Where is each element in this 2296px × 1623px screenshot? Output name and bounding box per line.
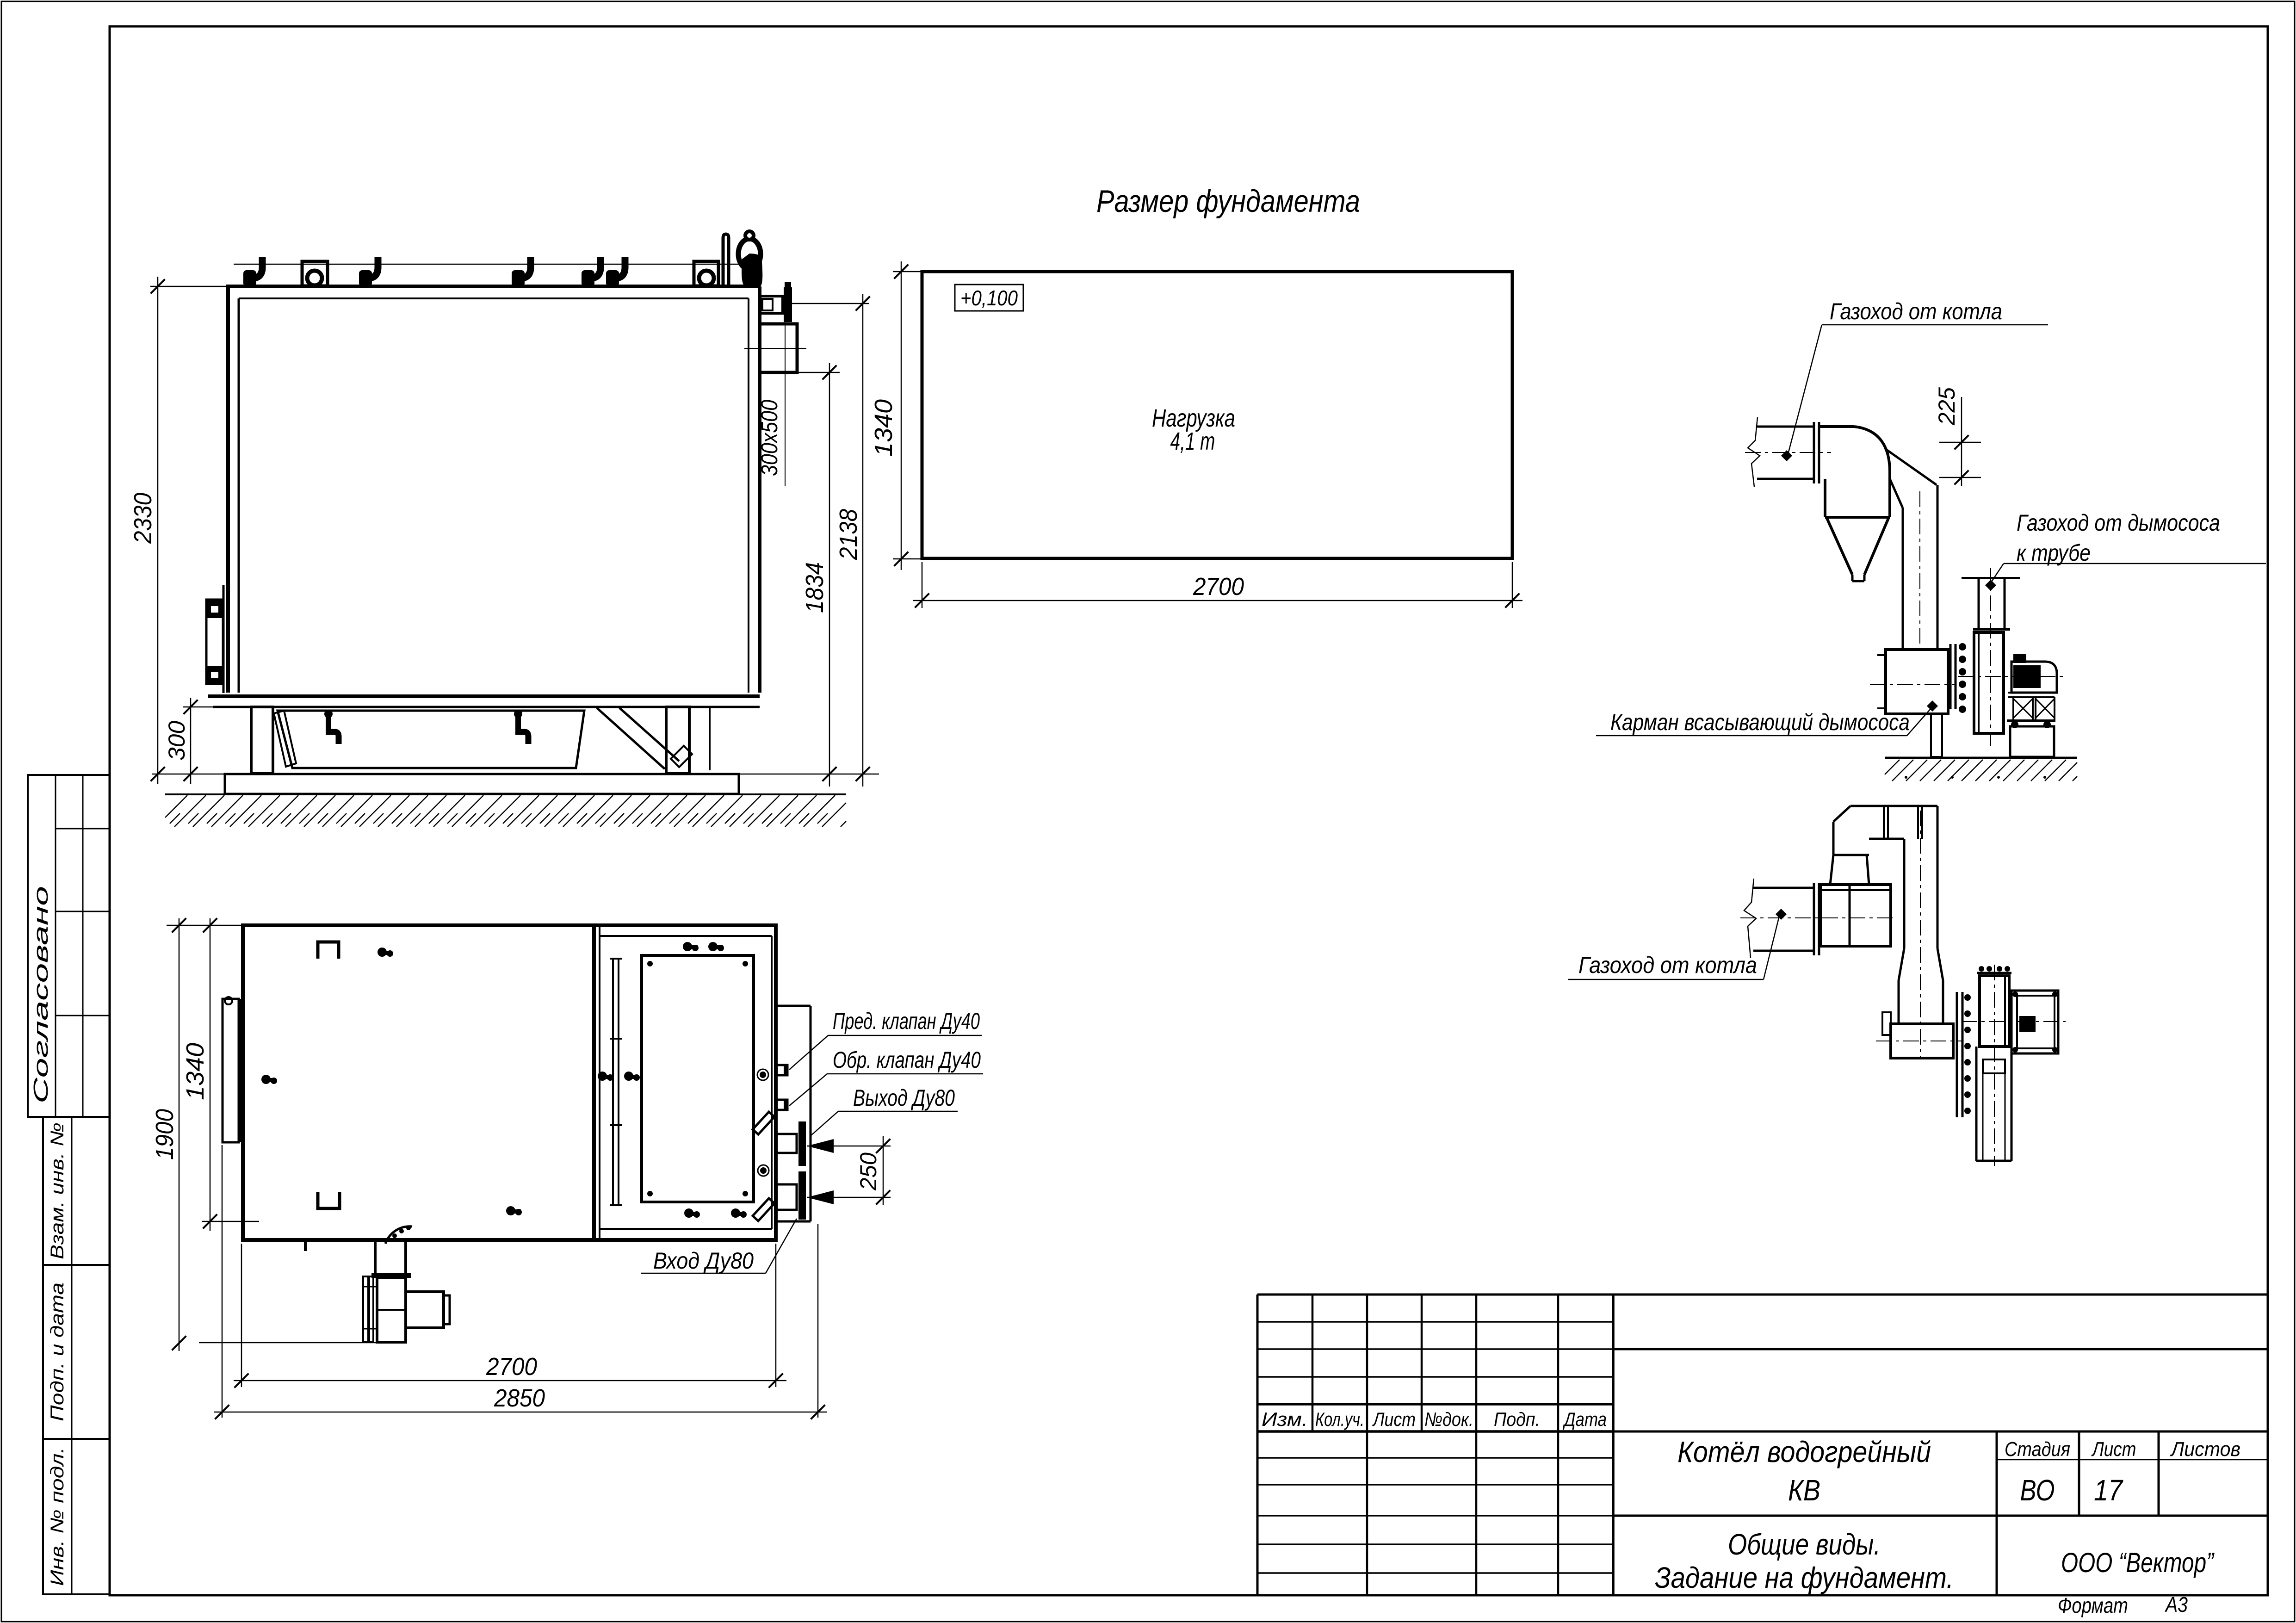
svg-text:Общие виды.: Общие виды. <box>1728 1528 1881 1561</box>
svg-text:Взам. инв. №: Взам. инв. № <box>47 1122 68 1259</box>
svg-text:1340: 1340 <box>181 1043 209 1100</box>
svg-text:Размер фундамента: Размер фундамента <box>1096 184 1360 219</box>
svg-text:17: 17 <box>2094 1474 2123 1507</box>
svg-text:Кол.уч.: Кол.уч. <box>1315 1408 1364 1430</box>
svg-text:Задание на фундамент.: Задание на фундамент. <box>1655 1561 1954 1594</box>
svg-text:Обр. клапан Ду40: Обр. клапан Ду40 <box>833 1047 981 1073</box>
svg-text:№док.: №док. <box>1424 1408 1473 1430</box>
svg-text:Подп.: Подп. <box>1494 1408 1540 1430</box>
svg-text:4,1 т: 4,1 т <box>1170 427 1215 455</box>
svg-text:1340: 1340 <box>870 399 897 457</box>
svg-text:225: 225 <box>1934 387 1960 426</box>
svg-text:2700: 2700 <box>1193 573 1244 601</box>
svg-text:Инв. № подл.: Инв. № подл. <box>47 1447 68 1586</box>
svg-text:Газоход от котла: Газоход от котла <box>1578 952 1757 978</box>
svg-text:+0,100: +0,100 <box>960 286 1018 310</box>
svg-text:ВО: ВО <box>2020 1474 2055 1507</box>
svg-text:2850: 2850 <box>494 1384 545 1412</box>
svg-text:к трубе: к трубе <box>2017 540 2091 566</box>
svg-text:Лист: Лист <box>1372 1408 1416 1430</box>
svg-text:Формат: Формат <box>2058 1593 2128 1617</box>
svg-text:Карман всасывающий дымососа: Карман всасывающий дымососа <box>1610 709 1910 735</box>
svg-text:Лист: Лист <box>2091 1438 2136 1461</box>
svg-text:Подп. и дата: Подп. и дата <box>47 1282 68 1421</box>
svg-text:250: 250 <box>855 1152 881 1191</box>
svg-text:Листов: Листов <box>2170 1438 2240 1461</box>
svg-text:2138: 2138 <box>835 509 862 560</box>
svg-text:Выход Ду80: Выход Ду80 <box>853 1085 955 1111</box>
svg-text:ООО “Вектор”: ООО “Вектор” <box>2061 1547 2215 1578</box>
svg-text:Газоход от котла: Газоход от котла <box>1830 298 2002 324</box>
svg-text:Дата: Дата <box>1563 1408 1607 1430</box>
svg-text:КВ: КВ <box>1788 1474 1820 1507</box>
svg-text:Изм.: Изм. <box>1262 1408 1308 1430</box>
svg-text:1834: 1834 <box>801 562 829 613</box>
svg-text:Стадия: Стадия <box>2005 1438 2070 1461</box>
svg-text:Вход Ду80: Вход Ду80 <box>653 1248 754 1274</box>
svg-text:Согласовано: Согласовано <box>30 886 52 1103</box>
svg-text:300х500: 300х500 <box>756 400 782 476</box>
svg-text:300: 300 <box>164 721 190 761</box>
svg-text:Пред. клапан Ду40: Пред. клапан Ду40 <box>833 1008 980 1034</box>
svg-text:2700: 2700 <box>486 1353 537 1381</box>
svg-text:А3: А3 <box>2164 1592 2188 1617</box>
svg-text:1900: 1900 <box>151 1109 179 1160</box>
svg-text:Газоход от дымососа: Газоход от дымососа <box>2017 510 2220 536</box>
svg-text:Котёл водогрейный: Котёл водогрейный <box>1677 1435 1931 1468</box>
svg-text:2330: 2330 <box>129 493 157 544</box>
